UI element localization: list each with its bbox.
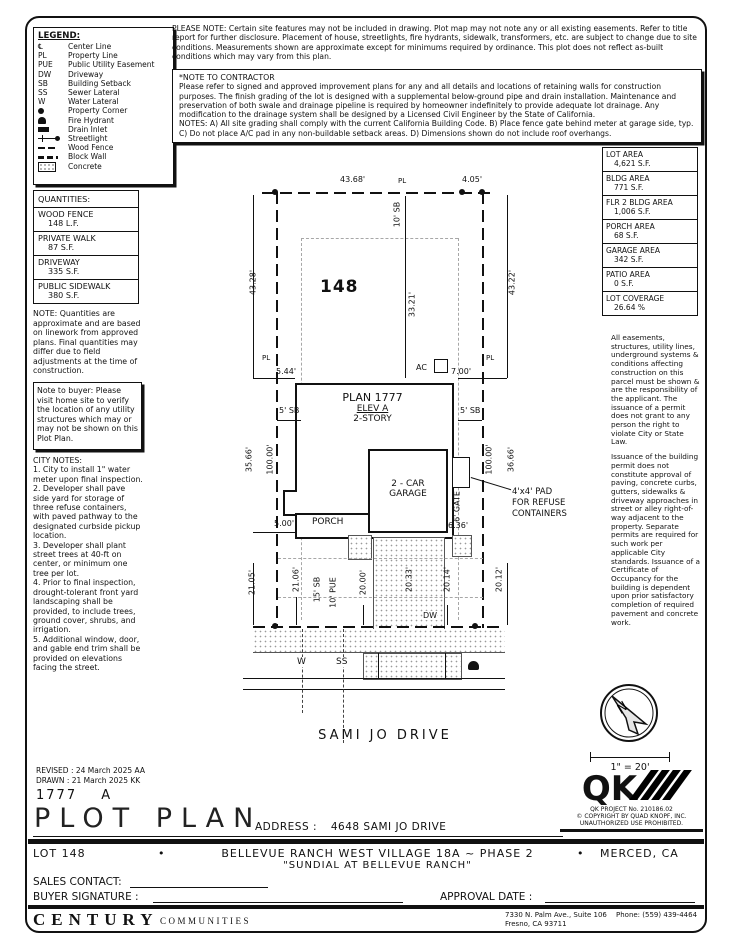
- plan-rev: A: [101, 788, 112, 803]
- city-note: 4. Prior to final inspection, drought-to…: [33, 578, 143, 634]
- contractor-title: *NOTE TO CONTRACTOR: [179, 73, 695, 82]
- legend-row: Wood Fence: [38, 143, 169, 152]
- dim-front-right: 20.14': [443, 560, 452, 600]
- dim-line: [253, 563, 254, 625]
- water-lateral-line: [302, 629, 303, 713]
- legend-row: Concrete: [38, 162, 169, 172]
- block-wall-icon: [38, 156, 58, 159]
- garage-label: 2 - CAR: [370, 479, 446, 489]
- private-walk: [348, 535, 372, 560]
- dim-line: [277, 420, 301, 421]
- refuse-callout-text: 4'x4' PAD FOR REFUSE CONTAINERS: [512, 487, 567, 520]
- dim-front-walk: 20.00': [359, 563, 368, 603]
- public-sidewalk: [253, 629, 505, 653]
- legend-row: PUEPublic Utility Easement: [38, 60, 169, 69]
- garage-label: GARAGE: [370, 489, 446, 499]
- dim-front-drive: 20.33': [405, 560, 414, 600]
- dim-depth-right: 43.22': [508, 263, 517, 303]
- footer-phone: Phone: (559) 439-4464: [616, 911, 697, 919]
- lot-number: 148: [320, 277, 359, 297]
- ac-label: AC: [416, 363, 427, 372]
- legend-row: Block Wall: [38, 152, 169, 161]
- plan-stories: 2-STORY: [295, 414, 450, 424]
- porch-label: PORCH: [312, 517, 343, 527]
- quantity-row: PUBLIC SIDEWALK380 S.F.: [34, 279, 138, 303]
- sales-contact-label: SALES CONTACT:: [33, 876, 122, 888]
- please-note: PLEASE NOTE: Certain site features may n…: [172, 24, 700, 61]
- sewer-lateral-label: SS: [336, 657, 347, 667]
- quantity-row: PRIVATE WALK87 S.F.: [34, 231, 138, 255]
- approval-date-label: APPROVAL DATE :: [440, 891, 532, 903]
- footer-address-1: 7330 N. Palm Ave., Suite 106: [505, 911, 607, 919]
- area-table: LOT AREA4,621 S.F. BLDG AREA771 S.F. FLR…: [602, 147, 698, 316]
- garage-outline: 2 - CAR GARAGE: [368, 449, 448, 533]
- easements-note: All easements, structures, utility lines…: [611, 334, 701, 447]
- legend-row: SSSewer Lateral: [38, 88, 169, 97]
- city-note: 1. City to install 1" water meter upon f…: [33, 465, 143, 484]
- scale-bar-tick: [669, 752, 670, 762]
- dim-line: [363, 605, 364, 625]
- street-name: SAMI JO DRIVE: [295, 728, 475, 743]
- legend-row: PLProperty Line: [38, 51, 169, 60]
- legend-row: ℄Center Line: [38, 42, 169, 51]
- title-underline: [33, 836, 563, 837]
- front-setback-line: [278, 558, 483, 559]
- city-notes-title: CITY NOTES:: [33, 456, 143, 465]
- dim-gate-offset: 6.36': [448, 521, 468, 530]
- address-label: ADDRESS :: [255, 821, 317, 833]
- right-setback-line: [458, 238, 459, 620]
- rear-yard-dim-line: [405, 238, 406, 378]
- area-row: PATIO AREA0 S.F.: [603, 268, 697, 292]
- centerline-symbol: ℄: [38, 42, 68, 51]
- title-rule: [28, 839, 704, 844]
- area-row: LOT COVERAGE26.64 %: [603, 292, 697, 315]
- ac-pad: [434, 359, 448, 373]
- dim-porch-offset: 5.00': [274, 519, 294, 528]
- area-row: GARAGE AREA342 S.F.: [603, 244, 697, 268]
- dim-front-setback: 15' SB: [313, 570, 322, 610]
- project-name: BELLEVUE RANCH WEST VILLAGE 18A ~ PHASE …: [180, 847, 575, 860]
- concrete-icon: [38, 162, 56, 172]
- quantities-table: QUANTITIES: WOOD FENCE148 L.F. PRIVATE W…: [33, 190, 139, 304]
- brand-sub: COMMUNITIES: [160, 916, 251, 926]
- street-line: [243, 689, 505, 690]
- dim-line: [447, 605, 448, 625]
- area-row: LOT AREA4,621 S.F.: [603, 148, 697, 172]
- bullet: •: [158, 847, 165, 860]
- buyer-signature-line: [153, 891, 403, 903]
- dim-line: [507, 563, 508, 625]
- dim-line: [458, 378, 507, 379]
- buyer-signature-label: BUYER SIGNATURE :: [33, 891, 139, 903]
- note-to-contractor-box: *NOTE TO CONTRACTOR Please refer to sign…: [172, 69, 702, 143]
- qk-logo-block: QK QK PROJECT No. 210186.02 © COPYRIGHT …: [560, 770, 703, 832]
- right-property-line: [482, 192, 484, 628]
- dim-pue: 10' PUE: [329, 573, 338, 613]
- apron-joint: [445, 653, 446, 678]
- quantities-title: QUANTITIES:: [34, 191, 138, 207]
- streetlight-icon: [38, 138, 58, 139]
- drawn-line: DRAWN : 21 March 2025 KK: [36, 776, 145, 786]
- dim-rear-jog: 4.05': [462, 175, 482, 184]
- north-arrow: N: [594, 680, 664, 750]
- plan-name: PLAN 1777: [295, 391, 450, 404]
- dim-left-pl-length: 100.00': [266, 440, 275, 480]
- dim-line: [253, 532, 295, 533]
- address-row: ADDRESS : 4648 SAMI JO DRIVE: [255, 821, 446, 833]
- scale-bar: [590, 757, 670, 758]
- legend-row: Streetlight: [38, 134, 169, 143]
- dim-line: [458, 420, 482, 421]
- brand-name: CENTURY: [33, 910, 158, 930]
- fire-hydrant-marker: [468, 661, 479, 670]
- permit-note: Issuance of the building permit does not…: [611, 453, 701, 627]
- scale-bar-tick: [590, 752, 591, 762]
- rear-setback-dim-line: [405, 196, 406, 238]
- dim-side-left: 5.44': [276, 367, 296, 376]
- project-subtitle: "SUNDIAL AT BELLEVUE RANCH": [180, 860, 575, 871]
- buyer-note-box: Note to buyer: Please visit home site to…: [33, 382, 142, 450]
- legend-box: LEGEND: ℄Center Line PLProperty Line PUE…: [33, 27, 174, 185]
- site-plan-drawing: 43.68' PL 4.05' 43.28' 43.22' 10' SB 33.…: [240, 165, 590, 773]
- porch-line: [295, 513, 368, 515]
- dim-front-left: 21.06': [292, 560, 301, 600]
- area-row: BLDG AREA771 S.F.: [603, 172, 697, 196]
- plan-labels: PLAN 1777 ELEV A 2-STORY: [295, 391, 450, 424]
- project-city: MERCED, CA: [600, 847, 679, 860]
- plan-elevation: ELEV A: [295, 404, 450, 414]
- area-row: FLR 2 BLDG AREA1,006 S.F.: [603, 196, 697, 220]
- sheet-title: PLOT PLAN: [34, 803, 262, 834]
- property-line-label: PL: [262, 354, 270, 362]
- wood-fence-icon: [38, 147, 58, 149]
- dim-side-right: 7.00': [451, 367, 471, 376]
- dim-side-setback-right: 5' SB: [460, 406, 480, 415]
- revision-block: REVISED : 24 March 2025 AA DRAWN : 21 Ma…: [36, 766, 145, 785]
- dim-front-left-outer: 21.05': [248, 563, 257, 603]
- qk-logo: QK: [560, 770, 703, 806]
- front-property-line: [253, 626, 505, 628]
- property-line-label: PL: [398, 177, 406, 185]
- dim-side-setback-left: 5' SB: [279, 406, 299, 415]
- legend-row: Property Corner: [38, 106, 169, 115]
- plan-id: 1777: [36, 788, 77, 803]
- fire-hydrant-icon: [38, 117, 46, 124]
- right-notes: All easements, structures, utility lines…: [611, 334, 701, 627]
- qk-rule: [560, 829, 703, 832]
- legend-title: LEGEND:: [38, 31, 169, 41]
- city-note: 5. Additional window, door, and gable en…: [33, 635, 143, 673]
- legend-row: DWDriveway: [38, 70, 169, 79]
- pue-line: [278, 597, 483, 598]
- revised-line: REVISED : 24 March 2025 AA: [36, 766, 145, 776]
- rear-setback-line: [301, 238, 458, 239]
- legend-row: SBBuilding Setback: [38, 79, 169, 88]
- bullet: •: [577, 847, 584, 860]
- water-lateral-label: W: [297, 657, 306, 667]
- qk-copyright: © COPYRIGHT BY QUAD KNOPF, INC.: [560, 813, 703, 820]
- legend-row: Drain Inlet: [38, 125, 169, 134]
- address-value: 4648 SAMI JO DRIVE: [331, 821, 447, 833]
- dim-rear-yard: 33.21': [408, 285, 417, 325]
- dim-depth-left: 43.28': [249, 263, 258, 303]
- legend-row: WWater Lateral: [38, 97, 169, 106]
- quantities-note: NOTE: Quantities are approximate and are…: [33, 309, 141, 376]
- dim-left-house-offset: 35.66': [245, 440, 254, 480]
- quantity-row: DRIVEWAY335 S.F.: [34, 255, 138, 279]
- plot-plan-page: LEGEND: ℄Center Line PLProperty Line PUE…: [0, 0, 729, 947]
- dim-lot-width-rear: 43.68': [340, 175, 365, 184]
- area-row: PORCH AREA68 S.F.: [603, 220, 697, 244]
- city-notes: CITY NOTES: 1. City to install 1" water …: [33, 456, 143, 672]
- dim-line: [253, 378, 295, 379]
- dim-front-right-outer: 20.12': [495, 560, 504, 600]
- plan-id-row: 1777 A: [36, 788, 112, 803]
- sewer-lateral-line: [343, 629, 344, 743]
- contractor-body: Please refer to signed and approved impr…: [179, 82, 695, 119]
- property-corner-icon: [38, 108, 44, 114]
- dim-right-house-offset: 36.66': [507, 440, 516, 480]
- quantity-row: WOOD FENCE148 L.F.: [34, 207, 138, 231]
- city-note: 3. Developer shall plant street trees at…: [33, 541, 143, 579]
- drain-inlet-icon: [38, 127, 49, 132]
- street-edge-line: [243, 678, 505, 679]
- contractor-notes: NOTES: A) All site grading shall comply …: [179, 119, 695, 138]
- city-note: 2. Developer shall pave side yard for st…: [33, 484, 143, 540]
- dim-rear-setback: 10' SB: [393, 195, 402, 235]
- left-property-line: [276, 192, 278, 628]
- sales-contact-line: [130, 876, 268, 888]
- dim-line: [296, 597, 297, 625]
- qk-notice: UNAUTHORIZED USE PROHIBITED.: [560, 820, 703, 827]
- apron-joint: [378, 653, 379, 678]
- side-pad: [452, 535, 472, 557]
- driveway-label: DW: [423, 611, 437, 620]
- dim-right-pl-length: 100.00': [485, 440, 494, 480]
- property-line-label: PL: [486, 354, 494, 362]
- footer-address-2: Fresno, CA 93711: [505, 920, 567, 928]
- property-corner-marker: [459, 189, 465, 195]
- footer-rule: [28, 905, 704, 909]
- lot-label: LOT 148: [33, 847, 86, 860]
- approval-date-line: [545, 891, 695, 903]
- legend-row: Fire Hydrant: [38, 116, 169, 125]
